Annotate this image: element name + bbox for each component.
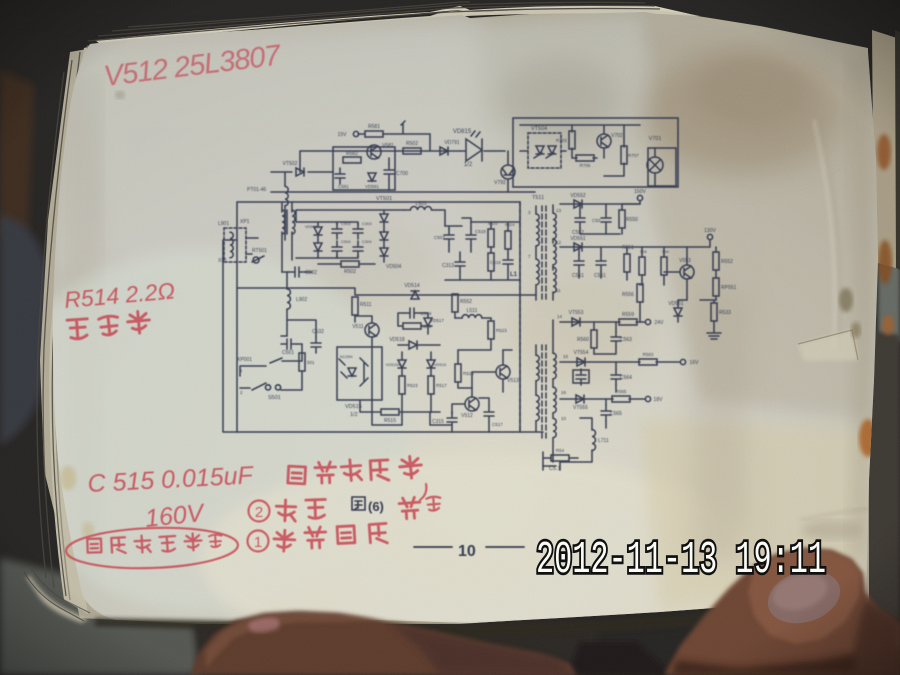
svg-text:2012-11-13 19:11: 2012-11-13 19:11 xyxy=(536,535,826,586)
